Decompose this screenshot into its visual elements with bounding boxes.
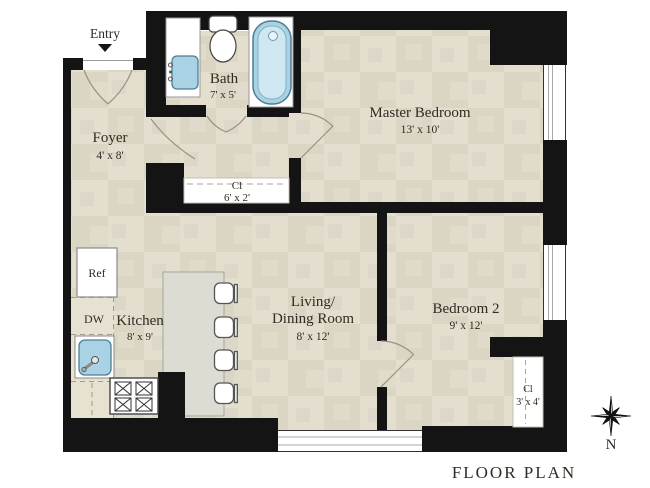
floor-plan-drawing: Entry Foyer 4' x 8' Bath 7' x 5' Master … (0, 0, 650, 488)
svg-text:Kitchen: Kitchen (116, 313, 164, 329)
svg-text:8' x 9': 8' x 9' (127, 331, 153, 343)
floor-plan-page: Entry Foyer 4' x 8' Bath 7' x 5' Master … (0, 0, 650, 488)
bath-sink (172, 56, 198, 89)
bathtub (249, 17, 293, 107)
entry-label: Entry (90, 26, 120, 52)
entry-opening (83, 58, 133, 70)
svg-text:Bedroom 2: Bedroom 2 (432, 301, 499, 317)
stove (110, 378, 158, 414)
bedroom2-window (543, 245, 566, 320)
svg-text:Master Bedroom: Master Bedroom (369, 105, 471, 121)
svg-text:13' x 10': 13' x 10' (401, 124, 440, 136)
svg-text:7' x 5': 7' x 5' (210, 89, 236, 101)
bath-label: Bath 7' x 5' (210, 71, 239, 101)
master-bedroom-window (543, 65, 566, 140)
svg-text:Bath: Bath (210, 71, 239, 87)
svg-text:6' x 2': 6' x 2' (224, 192, 250, 204)
svg-text:Dining Room: Dining Room (272, 311, 354, 327)
refrigerator-label: Ref (88, 266, 105, 280)
svg-text:Cl: Cl (523, 384, 533, 395)
toilet (209, 16, 237, 62)
svg-text:Living/: Living/ (291, 294, 336, 310)
tub-drain (269, 32, 278, 41)
svg-text:Entry: Entry (90, 26, 120, 41)
svg-text:Foyer: Foyer (93, 130, 128, 146)
svg-text:4' x 8': 4' x 8' (96, 150, 123, 162)
living-room-window (278, 430, 422, 452)
dishwasher-label: DW (84, 312, 105, 326)
kitchen-sink-unit (75, 336, 114, 378)
svg-text:9' x 12': 9' x 12' (450, 320, 483, 332)
apartment-floor (71, 30, 543, 430)
svg-text:Cl: Cl (232, 180, 242, 192)
svg-text:8' x 12': 8' x 12' (297, 331, 330, 343)
compass-rose: N (591, 396, 631, 453)
svg-text:3' x 4': 3' x 4' (516, 397, 540, 408)
plan-title: FLOOR PLAN (452, 463, 576, 482)
compass-north-label: N (606, 437, 617, 453)
entry-arrow-icon (98, 44, 112, 52)
